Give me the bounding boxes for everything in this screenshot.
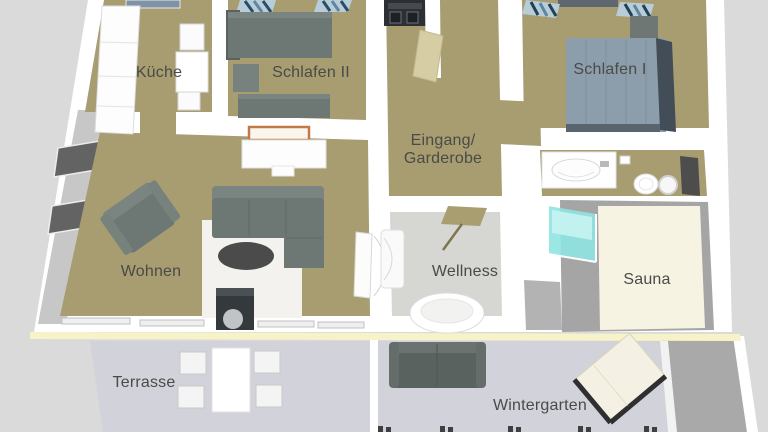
terrace-chair <box>178 386 204 408</box>
paper-holder <box>620 156 630 164</box>
faucet <box>600 161 609 167</box>
room-label-terrasse: Terrasse <box>113 374 176 392</box>
bathroom-window <box>680 156 700 196</box>
kitchen-chair-1 <box>180 24 204 50</box>
room-label-schlafen1: Schlafen I <box>573 61 646 79</box>
bath-mat <box>441 206 487 226</box>
terrace-table <box>212 348 250 412</box>
room-label-eingang-line2: Garderobe <box>404 150 482 168</box>
shower-anteroom-floor <box>524 280 562 330</box>
double-bed <box>566 38 666 132</box>
room-label-wohnen: Wohnen <box>121 263 182 281</box>
wellness-door <box>354 232 372 298</box>
sauna-floor <box>598 206 705 330</box>
coffee-table <box>218 242 274 270</box>
bed <box>228 12 332 58</box>
nightstand <box>233 64 259 92</box>
kueche-doorway <box>140 106 176 136</box>
tall-cabinet <box>95 6 140 134</box>
sideboard <box>242 140 326 168</box>
toilet <box>634 174 658 194</box>
wood-stove <box>216 288 254 330</box>
room-label-sauna: Sauna <box>623 271 670 289</box>
glass-shower <box>548 206 596 262</box>
kitchen-chair-2 <box>178 92 200 110</box>
wintergarten-sofa <box>389 342 486 388</box>
room-label-wellness: Wellness <box>432 263 498 281</box>
sink-basin <box>552 159 600 181</box>
bidet <box>659 176 677 194</box>
terrace-chair <box>180 352 206 374</box>
floorplan-drawing <box>0 0 768 432</box>
room-label-eingang-line1: Eingang/ <box>404 132 482 150</box>
room-label-wintergarten: Wintergarten <box>493 397 587 415</box>
room-label-kueche: Küche <box>136 64 182 82</box>
wardrobe-edge <box>558 0 618 7</box>
terrasse-wintergarten-divider-wall <box>370 336 378 432</box>
terrace-chair <box>256 385 282 407</box>
terrace-chair <box>254 351 280 373</box>
room-label-schlafen2: Schlafen II <box>272 64 350 82</box>
floorplan: Küche Schlafen II Schlafen I Eingang/ Ga… <box>0 0 768 432</box>
room-label-eingang: Eingang/ Garderobe <box>404 132 482 168</box>
picture <box>249 127 309 140</box>
